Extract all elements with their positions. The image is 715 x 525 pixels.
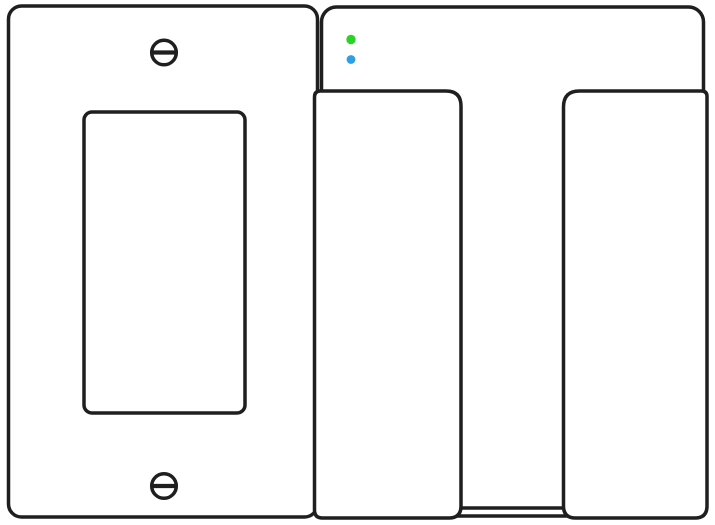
diagram-stage [0,0,715,525]
left-paddle [315,91,462,518]
green-status-led-icon [346,35,355,44]
right-paddle [564,91,708,518]
rocker-switch-opening [84,112,245,413]
blue-status-led-icon [347,55,356,64]
paddle-connector-bar [450,508,575,516]
diagram-canvas [0,0,715,525]
